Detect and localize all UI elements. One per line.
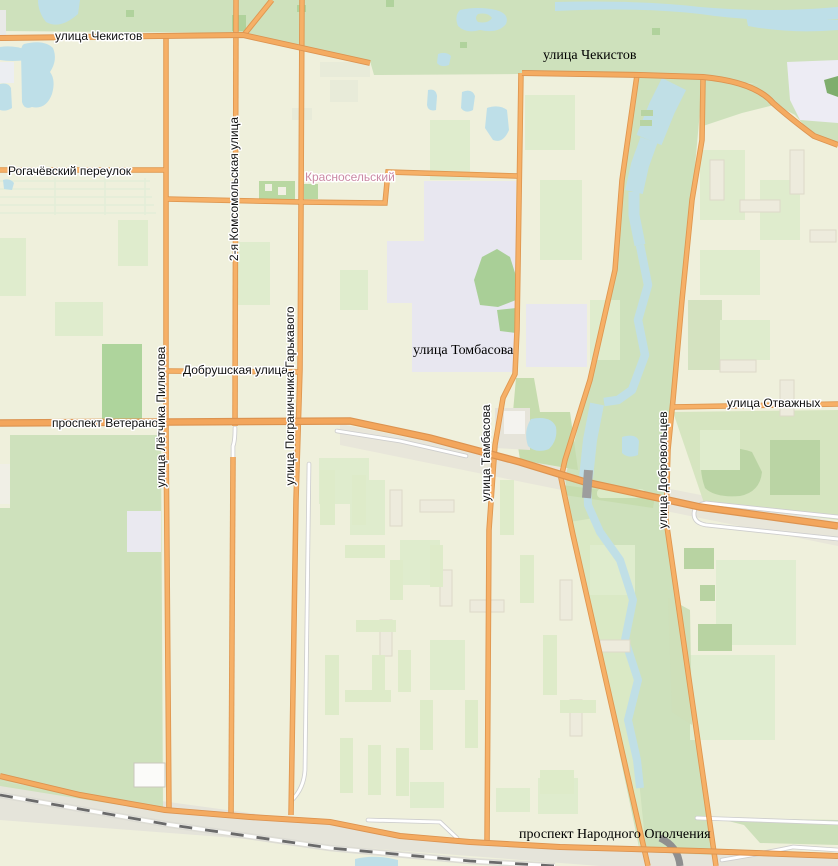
svg-text:Рогачёвский переулок: Рогачёвский переулок [8,164,132,178]
svg-text:улица Томбасова: улица Томбасова [413,343,514,358]
svg-text:улица Добровольцев: улица Добровольцев [656,411,670,528]
svg-text:улица Отважных: улица Отважных [727,396,820,410]
svg-text:улица Лётчика Пилютова: улица Лётчика Пилютова [154,346,168,487]
svg-text:проспект Народного Ополчения: проспект Народного Ополчения [519,827,711,842]
svg-text:Добрушская улица: Добрушская улица [183,363,288,377]
svg-text:улица Тамбасова: улица Тамбасова [479,404,493,501]
svg-text:улица Чекистов: улица Чекистов [543,48,637,63]
svg-text:улица Чекистов: улица Чекистов [55,29,142,43]
svg-text:проспект Ветеранов: проспект Ветеранов [52,416,165,430]
svg-text:2-я Комсомольская улица: 2-я Комсомольская улица [227,117,241,261]
svg-text:Красносельский: Красносельский [305,170,395,184]
svg-text:улица Пограничника Гарькавого: улица Пограничника Гарькавого [283,306,297,485]
